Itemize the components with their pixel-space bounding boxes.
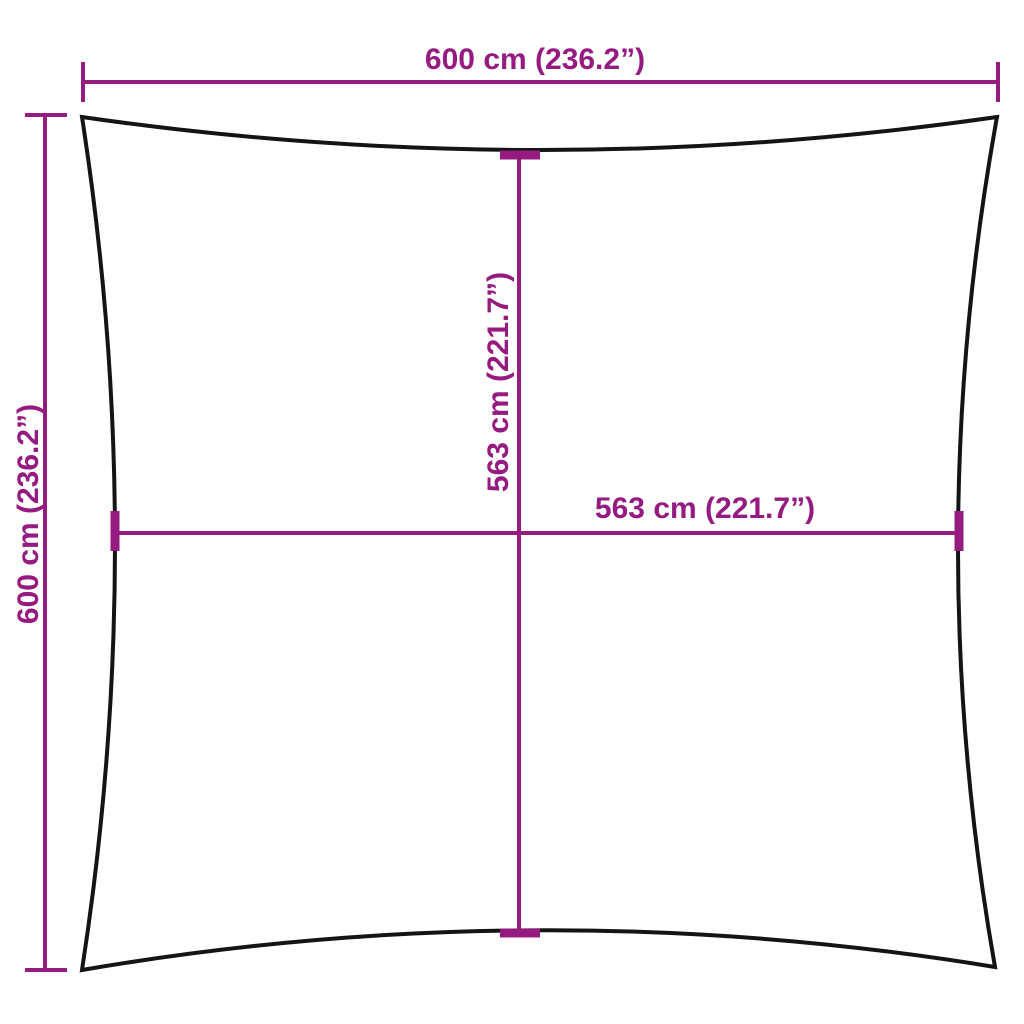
- top-width-label: 600 cm (236.2”): [425, 43, 645, 77]
- shade-sail-dimension-diagram: 600 cm (236.2”) 600 cm (236.2”) 563 cm (…: [0, 0, 1024, 1024]
- inner-width-dimension: [115, 511, 959, 551]
- diagram-drawing: [0, 0, 1024, 1024]
- left-height-label: 600 cm (236.2”): [12, 404, 46, 624]
- sail-outline: [82, 117, 997, 970]
- inner-width-label: 563 cm (221.7”): [595, 492, 815, 526]
- inner-height-label: 563 cm (221.7”): [482, 272, 516, 492]
